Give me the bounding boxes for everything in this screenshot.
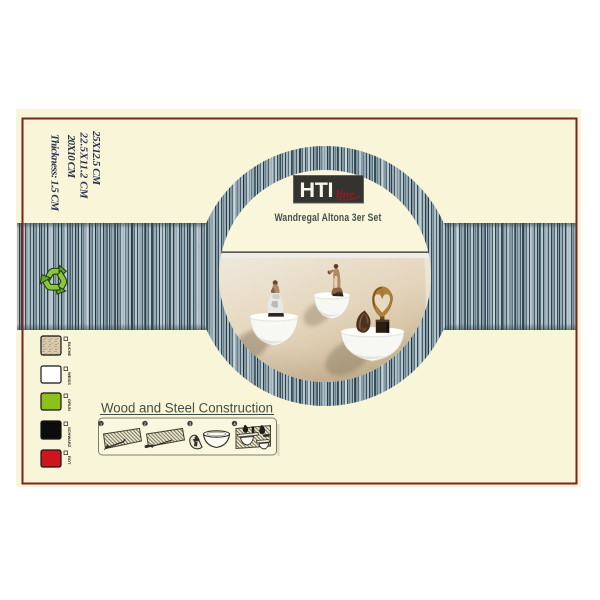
svg-text:Thickness: 1.5 CM: Thickness: 1.5 CM [49, 134, 61, 212]
svg-text:25X12.5 CM: 25X12.5 CM [90, 130, 102, 186]
svg-text:20X10 CM: 20X10 CM [65, 134, 77, 179]
svg-text:SCHWARZ: SCHWARZ [67, 427, 72, 448]
svg-text:4: 4 [233, 422, 236, 427]
svg-text:3: 3 [189, 422, 192, 427]
svg-text:Wandregal Altona 3er Set: Wandregal Altona 3er Set [275, 212, 382, 224]
svg-text:ROT: ROT [67, 456, 72, 465]
svg-text:1: 1 [100, 422, 103, 427]
svg-text:HTI: HTI [300, 178, 334, 202]
svg-text:BUCHE: BUCHE [67, 342, 72, 357]
svg-text:22.5X11.2 CM: 22.5X11.2 CM [78, 132, 90, 200]
svg-text:2: 2 [144, 422, 147, 427]
svg-text:Wood and Steel Construction: Wood and Steel Construction [101, 401, 273, 416]
svg-text:GRUN: GRUN [67, 399, 72, 411]
svg-text:WEISS: WEISS [67, 372, 72, 385]
